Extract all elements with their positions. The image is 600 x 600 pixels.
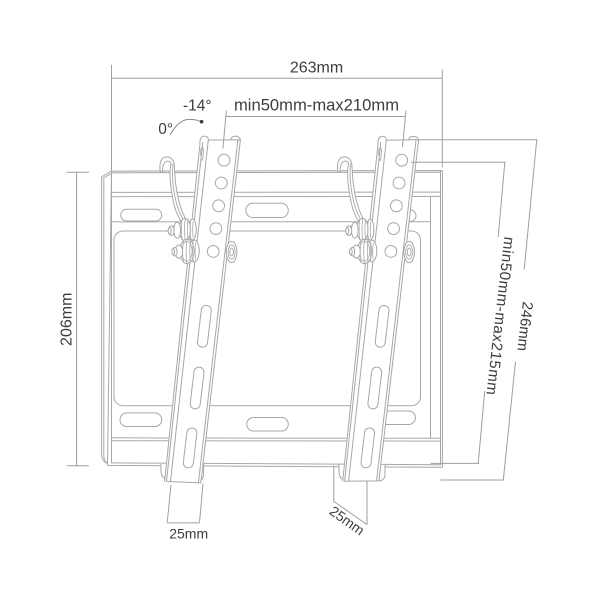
svg-text:-14°: -14° <box>183 97 212 114</box>
svg-text:min50mm-max215mm: min50mm-max215mm <box>482 236 517 396</box>
svg-text:25mm: 25mm <box>169 526 208 542</box>
svg-text:min50mm-max210mm: min50mm-max210mm <box>234 96 399 115</box>
svg-text:206mm: 206mm <box>59 293 76 346</box>
svg-text:263mm: 263mm <box>290 60 343 77</box>
svg-text:25mm: 25mm <box>327 503 368 539</box>
svg-text:246mm: 246mm <box>513 301 535 352</box>
svg-text:0°: 0° <box>158 121 173 138</box>
